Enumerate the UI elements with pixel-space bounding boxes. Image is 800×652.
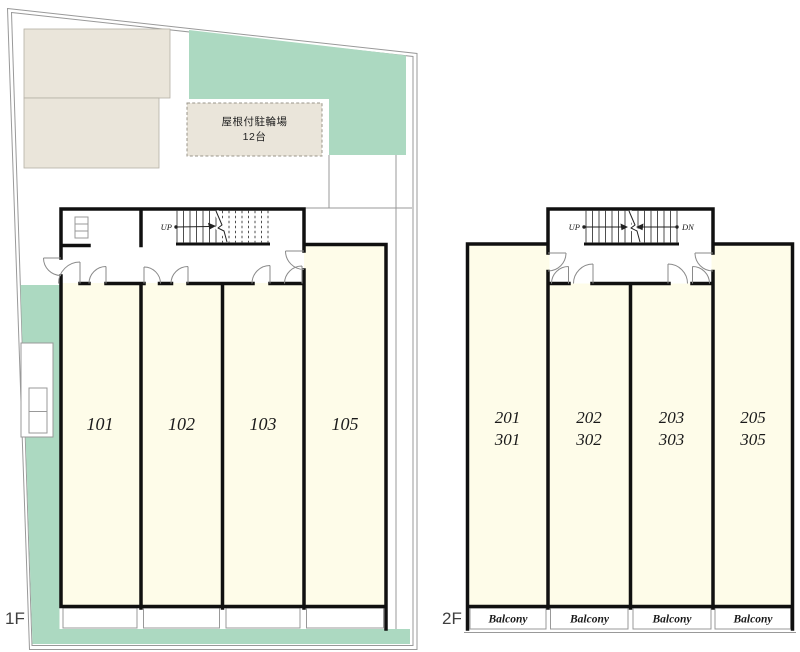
terrace-105 bbox=[307, 608, 384, 628]
room-label-205: 205 bbox=[740, 408, 766, 427]
room-label-101: 101 bbox=[87, 414, 114, 434]
stair-up-origin-2f bbox=[582, 225, 585, 228]
stair-up-label-2f: UP bbox=[569, 222, 580, 232]
balcony-label-1: Balcony bbox=[488, 614, 529, 626]
stair-direction-origin-1f bbox=[174, 225, 177, 228]
room-label-103: 103 bbox=[250, 414, 277, 434]
room-label-102: 102 bbox=[168, 414, 195, 434]
bike-parking-area bbox=[187, 103, 322, 156]
terrace-103 bbox=[226, 608, 300, 628]
meter-box bbox=[75, 217, 88, 238]
room-label-301: 301 bbox=[494, 430, 521, 449]
bike-parking-label-line2: 12台 bbox=[243, 130, 267, 143]
floor-label-1f: 1F bbox=[5, 609, 25, 628]
stairs-1f: UP bbox=[161, 211, 268, 243]
room-label-201: 201 bbox=[495, 408, 521, 427]
balcony-label-4: Balcony bbox=[733, 614, 774, 626]
balcony-label-2: Balcony bbox=[569, 614, 610, 626]
floor-label-2f: 2F bbox=[442, 609, 462, 628]
stair-up-label-1f: UP bbox=[161, 222, 172, 232]
doors-1f bbox=[44, 251, 305, 284]
balcony-label-3: Balcony bbox=[652, 614, 693, 626]
building-2f: UP DN 201 301 202 302 203 303 205 305 Ba… bbox=[464, 209, 796, 633]
room-fill-105-top bbox=[304, 244, 386, 284]
utility-unit bbox=[29, 388, 47, 433]
floor-plan-page: 屋根付駐輪場 12台 UP bbox=[0, 0, 800, 652]
room-label-303: 303 bbox=[658, 430, 685, 449]
floor-plan-drawing: 屋根付駐輪場 12台 UP bbox=[0, 0, 800, 652]
bike-parking-label-line1: 屋根付駐輪場 bbox=[222, 115, 288, 128]
stair-down-label-2f: DN bbox=[681, 222, 695, 232]
stair-direction-line-1f bbox=[176, 227, 210, 228]
parking-block-1 bbox=[24, 29, 170, 98]
room-label-302: 302 bbox=[575, 430, 602, 449]
room-label-202: 202 bbox=[576, 408, 602, 427]
stair-down-origin-2f bbox=[675, 225, 678, 228]
parking-block-2 bbox=[24, 98, 159, 168]
room-label-105: 105 bbox=[332, 414, 359, 434]
room-label-203: 203 bbox=[659, 408, 685, 427]
building-1f: UP 101 102 103 105 bbox=[44, 209, 387, 629]
terrace-102 bbox=[144, 608, 220, 628]
terrace-101 bbox=[63, 608, 137, 628]
room-label-305: 305 bbox=[739, 430, 766, 449]
